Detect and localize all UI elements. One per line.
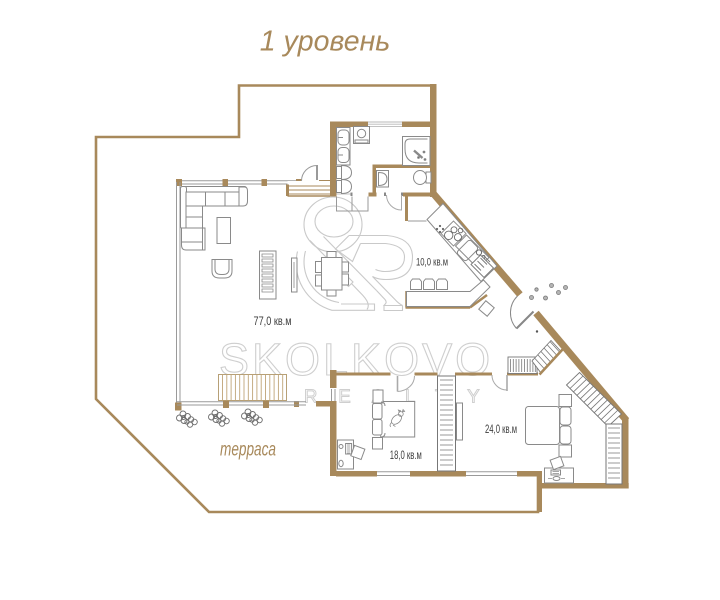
- svg-text:1 уровень: 1 уровень: [260, 26, 391, 58]
- svg-text:24,0 кв.м: 24,0 кв.м: [485, 424, 517, 436]
- svg-text:10,0 кв.м: 10,0 кв.м: [416, 257, 448, 269]
- svg-text:18,0 кв.м: 18,0 кв.м: [390, 450, 422, 462]
- svg-text:терраса: терраса: [220, 439, 276, 461]
- svg-text:77,0 кв.м: 77,0 кв.м: [254, 316, 292, 328]
